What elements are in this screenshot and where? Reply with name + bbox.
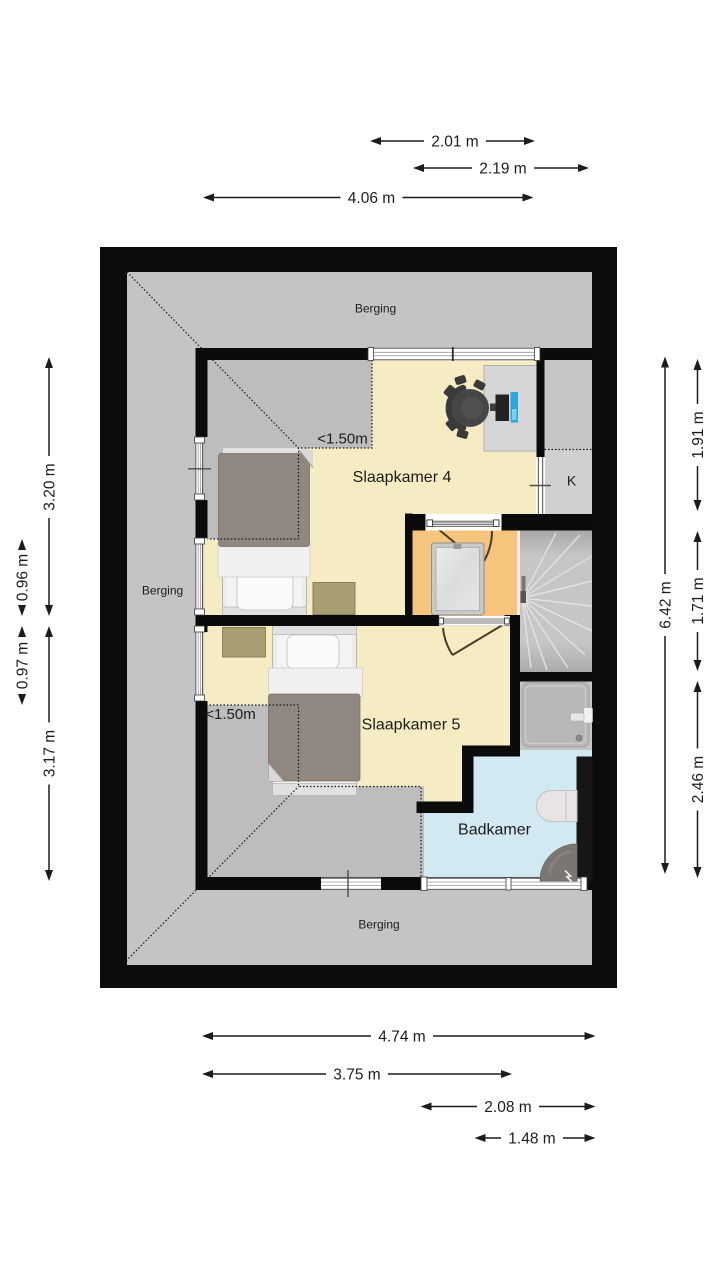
svg-text:0.97 m: 0.97 m [15,642,32,689]
svg-text:3.20 m: 3.20 m [42,463,59,510]
svg-text:Slaapkamer 4: Slaapkamer 4 [353,469,452,486]
svg-text:K: K [567,473,577,489]
svg-text:Berging: Berging [142,584,183,598]
svg-text:<1.50m: <1.50m [317,431,367,448]
svg-text:4.74 m: 4.74 m [378,1029,425,1046]
svg-text:Berging: Berging [355,302,396,316]
svg-text:3.75 m: 3.75 m [333,1067,380,1084]
svg-text:2.01 m: 2.01 m [431,134,478,151]
svg-text:2.19 m: 2.19 m [479,161,526,178]
svg-text:0.96 m: 0.96 m [15,554,32,601]
svg-text:Slaapkamer 5: Slaapkamer 5 [362,717,461,734]
svg-text:4.06 m: 4.06 m [348,190,395,207]
svg-text:2.08 m: 2.08 m [484,1099,531,1116]
svg-text:Berging: Berging [358,918,399,932]
svg-text:<1.50m: <1.50m [205,706,255,723]
svg-text:1.71 m: 1.71 m [690,577,707,624]
svg-text:6.42 m: 6.42 m [658,581,675,628]
svg-text:Badkamer: Badkamer [458,822,532,839]
svg-text:2.46 m: 2.46 m [690,756,707,803]
svg-text:1.91 m: 1.91 m [690,411,707,458]
svg-text:1.48 m: 1.48 m [508,1131,555,1148]
svg-text:3.17 m: 3.17 m [42,730,59,777]
